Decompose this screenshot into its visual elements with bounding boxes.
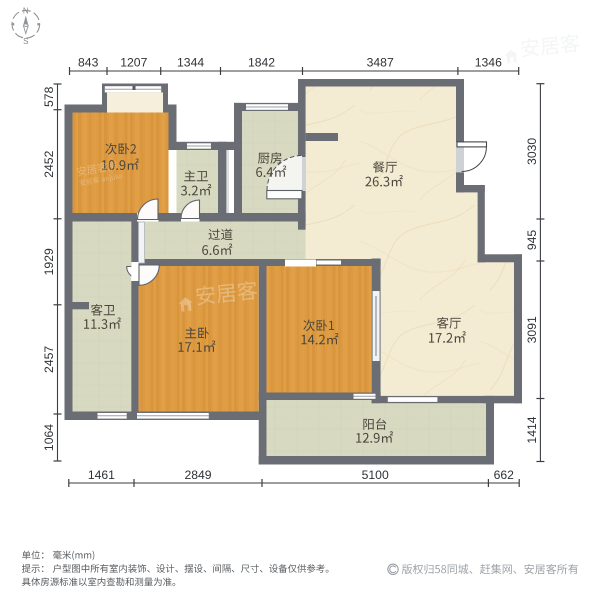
svg-text:3030: 3030 xyxy=(525,138,539,165)
svg-text:843: 843 xyxy=(78,56,99,70)
svg-text:2457: 2457 xyxy=(42,346,56,373)
svg-text:1344: 1344 xyxy=(177,56,204,70)
svg-text:1414: 1414 xyxy=(525,416,539,443)
svg-text:N: N xyxy=(23,6,29,15)
svg-text:1929: 1929 xyxy=(42,248,56,275)
svg-text:S: S xyxy=(23,37,28,46)
svg-text:3487: 3487 xyxy=(367,56,394,70)
svg-text:662: 662 xyxy=(494,468,515,482)
svg-text:2452: 2452 xyxy=(42,150,56,177)
svg-text:945: 945 xyxy=(525,230,539,251)
svg-text:5100: 5100 xyxy=(362,468,389,482)
svg-text:578: 578 xyxy=(42,86,56,107)
svg-text:1346: 1346 xyxy=(475,56,502,70)
svg-text:1064: 1064 xyxy=(42,424,56,451)
svg-text:3091: 3091 xyxy=(525,316,539,343)
svg-text:1842: 1842 xyxy=(248,56,275,70)
svg-text:1207: 1207 xyxy=(120,56,147,70)
svg-text:1461: 1461 xyxy=(88,468,115,482)
svg-text:2849: 2849 xyxy=(184,468,211,482)
